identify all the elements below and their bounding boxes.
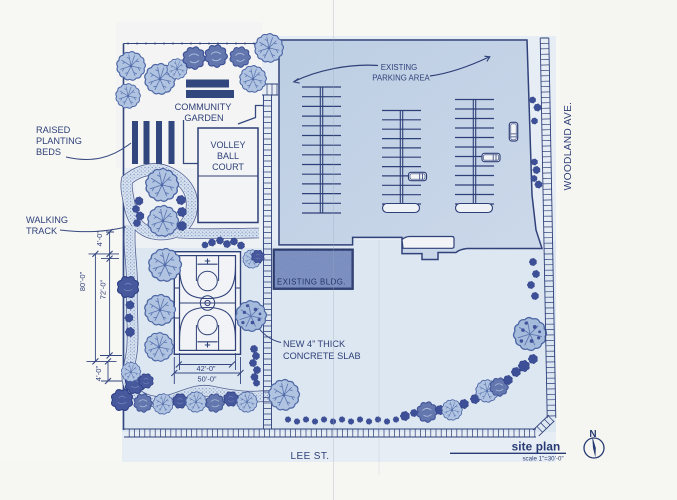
svg-text:TRACK: TRACK xyxy=(26,226,58,236)
svg-text:scale 1”=30’-0”: scale 1”=30’-0” xyxy=(522,456,563,463)
svg-text:NEW 4” THICK: NEW 4” THICK xyxy=(283,339,346,349)
svg-text:80’-0”: 80’-0” xyxy=(78,271,87,291)
svg-text:CONCRETE SLAB: CONCRETE SLAB xyxy=(283,351,361,361)
svg-text:COMMUNITY: COMMUNITY xyxy=(175,102,232,112)
svg-text:WALKING: WALKING xyxy=(26,215,68,225)
svg-text:COURT: COURT xyxy=(212,162,244,172)
svg-text:VOLLEY: VOLLEY xyxy=(210,140,245,150)
svg-text:EXISTING BLDG.: EXISTING BLDG. xyxy=(277,278,346,287)
svg-text:BALL: BALL xyxy=(217,151,239,161)
svg-text:WOODLAND AVE.: WOODLAND AVE. xyxy=(563,102,574,191)
svg-text:LEE ST.: LEE ST. xyxy=(291,451,330,462)
svg-text:BEDS: BEDS xyxy=(36,147,61,157)
svg-text:42’-0”: 42’-0” xyxy=(197,364,216,373)
svg-text:4’-0”: 4’-0” xyxy=(95,231,104,247)
svg-text:50’-0”: 50’-0” xyxy=(198,375,217,384)
svg-text:site plan: site plan xyxy=(512,440,561,454)
svg-text:RAISED: RAISED xyxy=(36,125,71,135)
svg-text:EXISTING: EXISTING xyxy=(381,63,417,72)
svg-text:PARKING AREA: PARKING AREA xyxy=(372,74,430,83)
svg-text:4’-0”: 4’-0” xyxy=(94,366,103,382)
svg-text:PLANTING: PLANTING xyxy=(36,136,82,146)
svg-text:72’-0”: 72’-0” xyxy=(99,279,108,299)
svg-text:N: N xyxy=(589,429,596,440)
svg-text:GARDEN: GARDEN xyxy=(184,113,223,123)
